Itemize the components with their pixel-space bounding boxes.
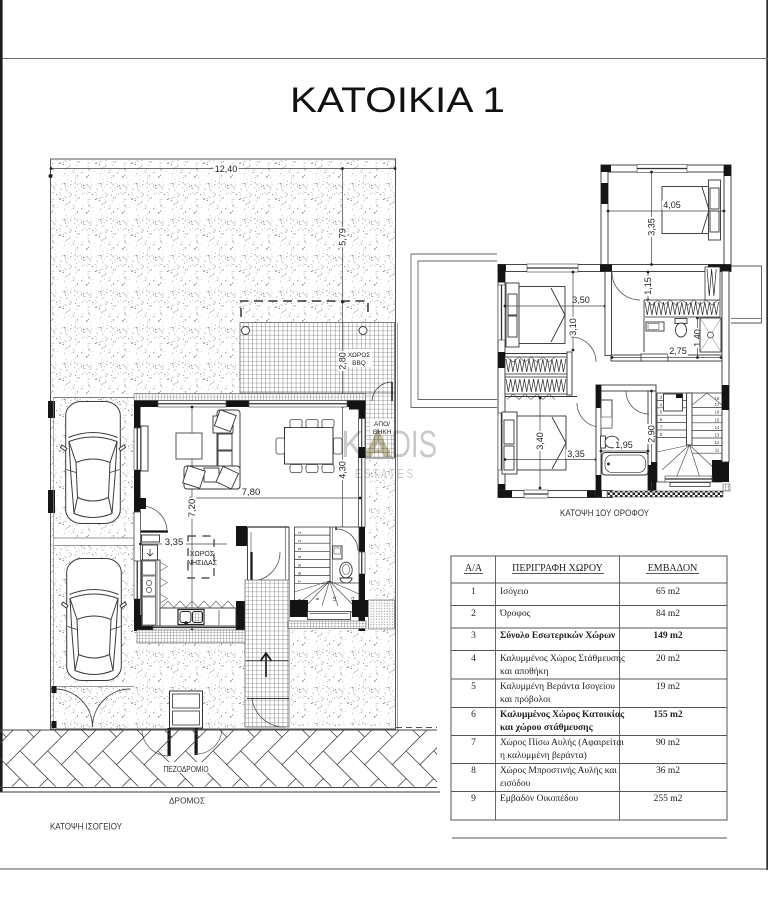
svg-text:84 m2: 84 m2 bbox=[656, 609, 680, 619]
svg-text:εισόδου: εισόδου bbox=[500, 779, 531, 789]
svg-text:Καλυμμένος Χώρος Στάθμευσης: Καλυμμένος Χώρος Στάθμευσης bbox=[500, 654, 625, 664]
svg-text:12: 12 bbox=[715, 440, 720, 445]
svg-text:ΧΩΡΟΣ: ΧΩΡΟΣ bbox=[348, 352, 371, 359]
svg-text:5: 5 bbox=[471, 682, 476, 692]
svg-text:14: 14 bbox=[715, 425, 720, 430]
svg-text:16: 16 bbox=[715, 410, 720, 415]
svg-text:9: 9 bbox=[471, 794, 476, 804]
svg-text:Καλυμμένη Βεράντα Ισογείου: Καλυμμένη Βεράντα Ισογείου bbox=[500, 682, 615, 692]
svg-text:Ισόγειο: Ισόγειο bbox=[500, 587, 529, 597]
svg-text:5,79: 5,79 bbox=[338, 228, 348, 246]
svg-text:9: 9 bbox=[315, 597, 320, 600]
svg-text:ΑΠΟ/: ΑΠΟ/ bbox=[374, 421, 390, 428]
svg-text:Σύνολο Εσωτερικών Χώρων: Σύνολο Εσωτερικών Χώρων bbox=[500, 630, 616, 641]
svg-text:7,20: 7,20 bbox=[187, 499, 198, 518]
svg-text:2,90: 2,90 bbox=[647, 425, 657, 443]
svg-text:2,80: 2,80 bbox=[338, 352, 348, 370]
svg-text:3,35: 3,35 bbox=[567, 449, 585, 459]
svg-text:7: 7 bbox=[297, 580, 302, 583]
svg-text:10: 10 bbox=[332, 596, 337, 602]
svg-text:Χώρος Πίσω Αυλής (Αφαιρείται: Χώρος Πίσω Αυλής (Αφαιρείται bbox=[500, 737, 624, 748]
svg-text:4,05: 4,05 bbox=[663, 200, 681, 210]
svg-text:1: 1 bbox=[471, 587, 476, 597]
svg-text:ΠΕΡΙΓΡΑΦΗ ΧΩΡΟΥ: ΠΕΡΙΓΡΑΦΗ ΧΩΡΟΥ bbox=[512, 563, 603, 574]
svg-text:18: 18 bbox=[715, 396, 720, 401]
svg-text:2: 2 bbox=[471, 609, 476, 619]
svg-text:και πρόβολοι: και πρόβολοι bbox=[500, 695, 551, 705]
svg-text:149 m2: 149 m2 bbox=[653, 631, 683, 641]
svg-text:65 m2: 65 m2 bbox=[656, 587, 680, 597]
svg-text:12,40: 12,40 bbox=[215, 164, 238, 174]
svg-text:Εμβαδόν Οικοπέδου: Εμβαδόν Οικοπέδου bbox=[500, 794, 578, 804]
svg-text:1,15: 1,15 bbox=[643, 277, 653, 295]
svg-text:3: 3 bbox=[297, 547, 302, 550]
svg-text:6: 6 bbox=[297, 572, 302, 575]
svg-text:DIS: DIS bbox=[391, 424, 437, 466]
svg-text:ΚΑΤΟΨΗ ΙΣΟΓΕΙΟΥ: ΚΑΤΟΨΗ ΙΣΟΓΕΙΟΥ bbox=[50, 822, 122, 832]
svg-text:E S T A T E S: E S T A T E S bbox=[355, 467, 413, 481]
svg-text:11: 11 bbox=[715, 448, 720, 453]
svg-text:Όροφος: Όροφος bbox=[499, 609, 531, 619]
svg-text:1,95: 1,95 bbox=[615, 440, 633, 450]
svg-text:36 m2: 36 m2 bbox=[656, 766, 680, 776]
svg-text:2,75: 2,75 bbox=[669, 346, 687, 356]
svg-text:2: 2 bbox=[297, 539, 302, 542]
svg-text:90 m2: 90 m2 bbox=[656, 738, 680, 748]
svg-text:ΚΑΤΟΨΗ 1ΟΥ ΟΡΟΦΟΥ: ΚΑΤΟΨΗ 1ΟΥ ΟΡΟΦΟΥ bbox=[560, 508, 650, 519]
svg-text:8: 8 bbox=[471, 766, 476, 776]
svg-text:3,50: 3,50 bbox=[572, 295, 590, 305]
svg-text:ΚΑΤΟΙΚΙΑ 1: ΚΑΤΟΙΚΙΑ 1 bbox=[290, 81, 505, 120]
svg-text:και χώρου στάθμευσης: και χώρου στάθμευσης bbox=[500, 722, 594, 733]
svg-text:3: 3 bbox=[471, 631, 476, 641]
svg-text:BBQ: BBQ bbox=[352, 360, 366, 367]
svg-text:15: 15 bbox=[715, 417, 720, 422]
svg-text:ΔΡΟΜΟΣ: ΔΡΟΜΟΣ bbox=[169, 796, 205, 806]
svg-text:4: 4 bbox=[297, 555, 302, 558]
svg-text:η καλυμμένη βεράντα): η καλυμμένη βεράντα) bbox=[500, 750, 587, 761]
svg-text:6: 6 bbox=[471, 710, 476, 720]
svg-text:ΧΩΡΟΣ: ΧΩΡΟΣ bbox=[190, 551, 215, 558]
svg-text:ΝΗΣΙΔΑΣ: ΝΗΣΙΔΑΣ bbox=[187, 560, 218, 567]
svg-text:7,80: 7,80 bbox=[242, 487, 261, 498]
svg-text:4: 4 bbox=[471, 654, 476, 664]
svg-text:ΠΕΖΟΔΡΟΜΙΟ: ΠΕΖΟΔΡΟΜΙΟ bbox=[164, 764, 209, 774]
svg-text:1: 1 bbox=[297, 531, 302, 534]
svg-text:Α/Α: Α/Α bbox=[465, 563, 483, 574]
svg-text:Χώρος Μπροστινής Αυλής και: Χώρος Μπροστινής Αυλής και bbox=[500, 766, 617, 776]
svg-text:ΕΜΒΑΔΟΝ: ΕΜΒΑΔΟΝ bbox=[648, 563, 698, 574]
svg-text:και αποθήκη: και αποθήκη bbox=[500, 667, 548, 677]
svg-text:7: 7 bbox=[471, 738, 476, 748]
svg-text:19 m2: 19 m2 bbox=[656, 682, 680, 692]
svg-text:13: 13 bbox=[715, 433, 720, 438]
svg-text:5: 5 bbox=[297, 564, 302, 567]
svg-text:3,40: 3,40 bbox=[535, 432, 545, 450]
svg-text:Καλυμμένος Χώρος Κατοικίας: Καλυμμένος Χώρος Κατοικίας bbox=[500, 709, 625, 720]
svg-text:K: K bbox=[341, 424, 364, 466]
svg-text:3,10: 3,10 bbox=[568, 318, 578, 336]
svg-text:3,35: 3,35 bbox=[647, 218, 657, 236]
svg-text:255 m2: 255 m2 bbox=[654, 794, 683, 804]
svg-text:20 m2: 20 m2 bbox=[656, 654, 680, 664]
svg-text:3,35: 3,35 bbox=[165, 537, 184, 548]
svg-text:155 m2: 155 m2 bbox=[653, 710, 683, 720]
